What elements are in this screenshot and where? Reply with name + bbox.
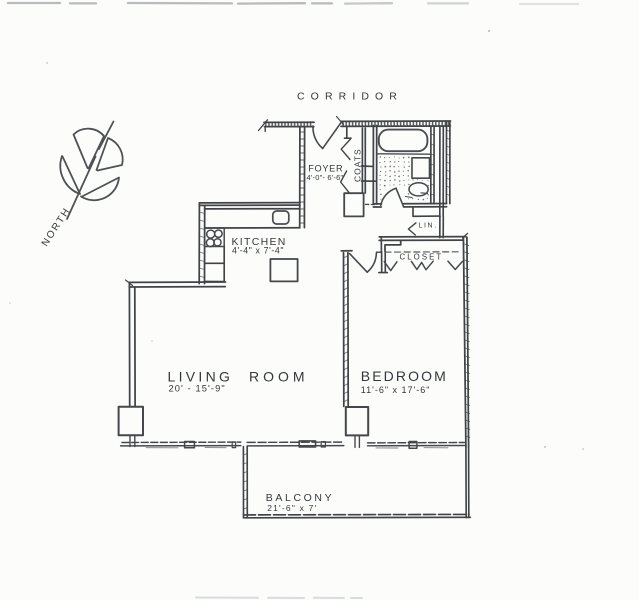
svg-text:FOYER: FOYER [308,164,343,174]
svg-text:CLOSET: CLOSET [400,252,444,261]
svg-text:21'-6" x 7': 21'-6" x 7' [267,503,317,513]
svg-text:LIN.: LIN. [419,223,438,230]
svg-text:CORRIDOR: CORRIDOR [297,91,403,103]
svg-text:ROOM: ROOM [249,369,309,385]
svg-text:BEDROOM: BEDROOM [361,368,448,384]
svg-text:COATS: COATS [353,148,363,182]
svg-text:11'-6" x 17'-6": 11'-6" x 17'-6" [361,385,431,395]
svg-text:LIVING: LIVING [168,369,234,385]
svg-text:4'-0"- 6'-6": 4'-0"- 6'-6" [307,173,344,182]
svg-text:4'-4" x 7'-4": 4'-4" x 7'-4" [232,246,284,256]
svg-text:NORTH: NORTH [40,205,73,248]
svg-text:20' - 15'-9": 20' - 15'-9" [169,384,226,394]
